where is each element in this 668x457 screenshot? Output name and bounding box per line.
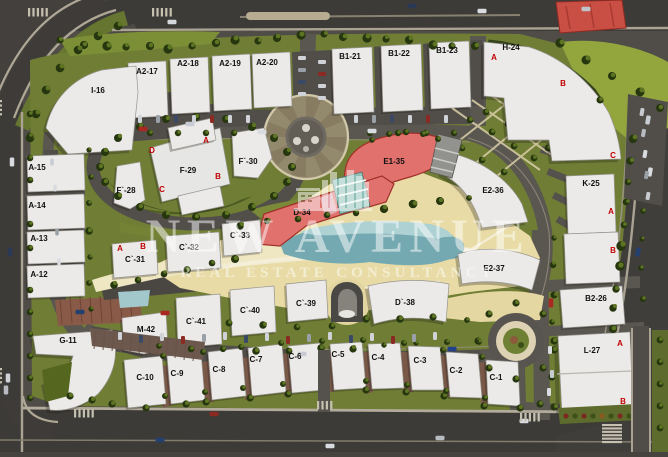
svg-text:C-3: C-3	[414, 356, 427, 365]
svg-text:A2-18: A2-18	[177, 59, 199, 68]
svg-text:B2-26: B2-26	[585, 294, 607, 303]
svg-text:F`-28: F`-28	[116, 186, 136, 195]
svg-text:B1-21: B1-21	[339, 52, 361, 61]
svg-text:C`-39: C`-39	[296, 299, 317, 308]
svg-text:B: B	[620, 397, 626, 406]
svg-text:K-25: K-25	[582, 179, 600, 188]
svg-text:F`-30: F`-30	[238, 157, 258, 166]
svg-text:C-10: C-10	[136, 373, 154, 382]
svg-text:C-8: C-8	[213, 365, 226, 374]
svg-text:H-24: H-24	[502, 43, 520, 52]
svg-text:B: B	[610, 246, 616, 255]
svg-text:C-9: C-9	[171, 369, 184, 378]
svg-text:B: B	[560, 79, 566, 88]
svg-text:B1-23: B1-23	[436, 46, 458, 55]
svg-text:E1-35: E1-35	[383, 157, 405, 166]
svg-text:M-42: M-42	[137, 325, 156, 334]
svg-text:A-13: A-13	[30, 234, 48, 243]
svg-text:A-14: A-14	[28, 201, 46, 210]
svg-text:C`-31: C`-31	[125, 255, 146, 264]
svg-text:D`-38: D`-38	[395, 298, 416, 307]
svg-text:C-1: C-1	[490, 373, 503, 382]
svg-text:A2-20: A2-20	[256, 58, 278, 67]
svg-text:A2-19: A2-19	[219, 59, 241, 68]
svg-text:A-12: A-12	[30, 270, 48, 279]
svg-text:C`-40: C`-40	[240, 306, 261, 315]
svg-text:C-4: C-4	[372, 353, 385, 362]
svg-text:C-7: C-7	[250, 355, 263, 364]
svg-text:REAL ESTATE CONSULTANCY: REAL ESTATE CONSULTANCY	[180, 265, 495, 281]
svg-text:G-11: G-11	[59, 336, 77, 345]
svg-text:A: A	[117, 244, 123, 253]
svg-text:C: C	[610, 151, 616, 160]
svg-text:L-27: L-27	[584, 346, 601, 355]
svg-text:B1-22: B1-22	[388, 49, 410, 58]
svg-text:B: B	[215, 172, 221, 181]
svg-text:C-2: C-2	[450, 366, 463, 375]
svg-text:C-6: C-6	[289, 352, 302, 361]
svg-text:A: A	[617, 339, 623, 348]
svg-text:NEW AVENUE: NEW AVENUE	[146, 210, 531, 263]
svg-text:A2-17: A2-17	[136, 67, 158, 76]
svg-text:C-5: C-5	[332, 350, 345, 359]
svg-text:E2-36: E2-36	[482, 186, 504, 195]
svg-text:A-15: A-15	[28, 163, 46, 172]
svg-text:I-16: I-16	[91, 86, 105, 95]
svg-text:F-29: F-29	[180, 166, 197, 175]
svg-text:C: C	[159, 185, 165, 194]
svg-text:D: D	[149, 146, 155, 155]
svg-text:C`-41: C`-41	[186, 317, 207, 326]
svg-text:A: A	[608, 207, 614, 216]
svg-text:A: A	[203, 136, 209, 145]
svg-text:A: A	[491, 53, 497, 62]
